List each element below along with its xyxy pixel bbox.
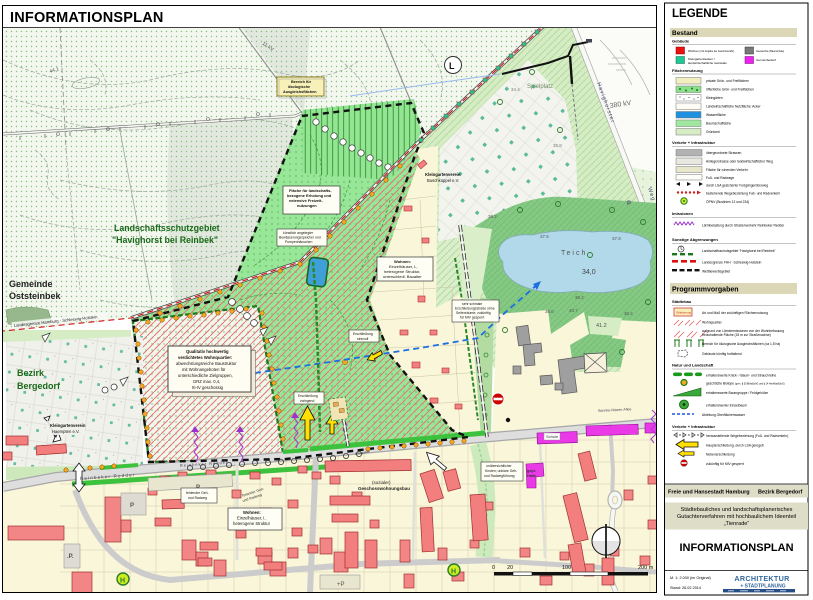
- svg-text:Qualitativ hochwertig: Qualitativ hochwertig: [186, 349, 229, 354]
- svg-text:geschützte Biotope (gem. § 30: geschützte Biotope (gem. § 30 BNatSchG u…: [706, 382, 785, 386]
- svg-text:unterschiedliche Zielgruppen,: unterschiedliche Zielgruppen,: [178, 373, 233, 378]
- svg-text:freizuhaltende Fläche (15 m zu: freizuhaltende Fläche (15 m zur Straßena…: [702, 333, 771, 337]
- svg-text:„Tienrade“: „Tienrade“: [724, 521, 750, 527]
- svg-text:(sozialer): (sozialer): [372, 480, 391, 485]
- svg-text:öffentliche Grün- und Freifläc: öffentliche Grün- und Freiflächen: [706, 88, 754, 92]
- svg-text:Wohnen:: Wohnen:: [243, 510, 261, 515]
- svg-text:Landesgrenze FHH - Schleswig-H: Landesgrenze FHH - Schleswig-Holstein: [702, 261, 762, 265]
- svg-text:Pumpenhäuschen: Pumpenhäuschen: [285, 240, 312, 244]
- svg-text:Natur und Landschaft: Natur und Landschaft: [672, 363, 714, 368]
- svg-text:Bestand: Bestand: [672, 30, 698, 37]
- svg-text:sinnvoll: sinnvoll: [357, 337, 369, 341]
- svg-text:und Radwegführung: und Radwegführung: [484, 474, 515, 478]
- svg-text:Baumschulfläche: Baumschulfläche: [706, 122, 731, 126]
- svg-text:Geschosswohnungsbau: Geschosswohnungsbau: [358, 486, 410, 491]
- svg-text:Wettbewerbsgebiet: Wettbewerbsgebiet: [702, 270, 730, 274]
- svg-text:Ausgleichsflächen: Ausgleichsflächen: [283, 90, 317, 94]
- svg-text:Bereich für ökologische Ausgle: Bereich für ökologische Ausgleichsfläche…: [702, 342, 780, 346]
- svg-text:Lärmbelastung durch Straßenver: Lärmbelastung durch Straßenverkehr Reinb…: [702, 224, 785, 228]
- svg-text:durch LSA gesicherter Fußgänge: durch LSA gesicherter Fußgängerüberweg: [706, 184, 768, 188]
- svg-text:landwirtschaftliche Gebäude: landwirtschaftliche Gebäude: [688, 61, 727, 65]
- svg-text:Haempten e.V.: Haempten e.V.: [52, 429, 80, 434]
- svg-text:Bergedorf: Bergedorf: [17, 381, 61, 391]
- svg-text:Einzelhäuser, I,: Einzelhäuser, I,: [237, 516, 266, 521]
- svg-text:.P.: .P.: [67, 554, 74, 560]
- svg-text:Wohnen (mit Angabe der Geschos: Wohnen (mit Angabe der Geschosszahl): [688, 49, 734, 53]
- svg-text:Wasserfläche: Wasserfläche: [706, 113, 726, 117]
- svg-text:Fuß- und Radwege: Fuß- und Radwege: [706, 176, 734, 180]
- svg-text:fehlender Geh-: fehlender Geh-: [186, 491, 209, 495]
- svg-text:Städtebauliches und landschaft: Städtebauliches und landschaftsplanerisc…: [681, 507, 793, 513]
- svg-text:ökologische: ökologische: [288, 85, 310, 89]
- svg-text:H: H: [120, 578, 125, 585]
- svg-text:Gebäude künftig fortfallend: Gebäude künftig fortfallend: [702, 352, 742, 356]
- svg-text:Städtebau: Städtebau: [672, 299, 692, 304]
- svg-text:abwechslungsreiche Baustruktur: abwechslungsreiche Baustruktur: [176, 361, 237, 366]
- svg-text:heterogene Struktur: heterogene Struktur: [233, 521, 271, 526]
- svg-text:200 m: 200 m: [638, 565, 654, 571]
- svg-text:Ableitung Oberflächenwasser: Ableitung Oberflächenwasser: [702, 413, 746, 417]
- svg-text:37.9: 37.9: [612, 236, 621, 241]
- svg-text:INFORMATIONSPLAN: INFORMATIONSPLAN: [679, 542, 793, 554]
- svg-text:Verkehr + Infrastruktur: Verkehr + Infrastruktur: [672, 424, 715, 429]
- svg-text:Schule: Schule: [546, 434, 559, 439]
- svg-text:für MIV gesperrt: für MIV gesperrt: [460, 316, 484, 320]
- svg-text:Nebenerschließung: Nebenerschließung: [706, 453, 735, 457]
- svg-text:zwingend: zwingend: [300, 399, 314, 403]
- svg-text:0: 0: [492, 565, 495, 571]
- svg-text:sehr schmale: sehr schmale: [462, 302, 482, 306]
- svg-text:erhaltenswerter Einzelbaum: erhaltenswerter Einzelbaum: [706, 404, 747, 408]
- svg-text:bestehende Wegebeziehung Fuß-: bestehende Wegebeziehung Fuß- und Radver…: [706, 192, 781, 196]
- svg-text:Knoten; unklare Geh-: Knoten; unklare Geh-: [485, 469, 517, 473]
- svg-text:Fläche für ruhenden Verkehr: Fläche für ruhenden Verkehr: [706, 168, 749, 172]
- svg-text:Flächennutzung: Flächennutzung: [672, 68, 703, 73]
- svg-text:Gebäude: Gebäude: [672, 39, 690, 44]
- svg-text:LEGENDE: LEGENDE: [672, 8, 728, 20]
- svg-text:Gemeinde: Gemeinde: [9, 279, 53, 289]
- svg-text:erhaltenswerte Knick- / Baum-: erhaltenswerte Knick- / Baum- und Strauc…: [706, 374, 776, 378]
- svg-text:übergeordnete Strassen: übergeordnete Strassen: [706, 151, 742, 155]
- svg-text:mit Wohnangeboten für: mit Wohnangeboten für: [182, 367, 226, 372]
- svg-text:unübersichtlicher: unübersichtlicher: [486, 464, 513, 468]
- svg-text:Oststeinbek: Oststeinbek: [9, 291, 62, 301]
- svg-text:INFORMATIONSPLAN: INFORMATIONSPLAN: [10, 10, 164, 26]
- svg-text:Bezirk: Bezirk: [17, 368, 45, 378]
- svg-text:Programmvorgaben: Programmvorgaben: [672, 287, 739, 294]
- svg-text:Seitenräume; zukünftig: Seitenräume; zukünftig: [456, 311, 491, 315]
- svg-text:Erläuterung: Erläuterung: [677, 311, 692, 315]
- svg-text:Anliegerstrasse oder landwirts: Anliegerstrasse oder landwirtschaftliche…: [706, 160, 773, 164]
- svg-text:100: 100: [562, 565, 571, 571]
- svg-text:Spielplatz: Spielplatz: [527, 84, 553, 90]
- svg-text:Bereich für: Bereich für: [291, 80, 312, 84]
- svg-text:34.4: 34.4: [511, 87, 520, 92]
- svg-text:zukünftig für MIV gesperrt: zukünftig für MIV gesperrt: [706, 462, 744, 466]
- svg-text:Landschaftsschutzgebiet "Havig: Landschaftsschutzgebiet "Havighorst bei …: [702, 249, 776, 253]
- svg-text:Kleingärten: Kleingärten: [706, 96, 723, 100]
- svg-text:36.2: 36.2: [624, 311, 633, 316]
- svg-text:Stand: 26.02.2014: Stand: 26.02.2014: [670, 586, 701, 590]
- svg-text:Bezirk Bergedorf: Bezirk Bergedorf: [758, 490, 802, 496]
- svg-text:unterschiedl. Baualter: unterschiedl. Baualter: [383, 274, 422, 279]
- svg-text:41.2: 41.2: [596, 323, 607, 329]
- svg-text:herausstellende Wegebeziehung: herausstellende Wegebeziehung (Fuß- und …: [706, 434, 788, 438]
- svg-text:Landwirtschaftliche Nutzfläche: Landwirtschaftliche Nutzfläche: Acker: [706, 105, 762, 109]
- svg-text:Verkehr + Infrastruktur: Verkehr + Infrastruktur: [672, 140, 715, 145]
- svg-text:P: P: [627, 201, 631, 207]
- svg-text:L: L: [449, 61, 455, 71]
- svg-text:Halle: Halle: [527, 474, 536, 478]
- svg-text:III-IV geschossig: III-IV geschossig: [192, 385, 224, 390]
- svg-text:Freie und Hansestadt Hamburg: Freie und Hansestadt Hamburg: [668, 490, 750, 496]
- svg-text:nutzungen: nutzungen: [297, 203, 317, 208]
- svg-text:Wohnquartier: Wohnquartier: [702, 321, 723, 325]
- svg-text:Erschließung: Erschließung: [353, 332, 373, 336]
- svg-text:P: P: [130, 503, 134, 509]
- svg-text:40.7: 40.7: [569, 308, 578, 313]
- svg-text:gepl.: gepl.: [527, 469, 536, 473]
- svg-text:erhaltenswerte Baumgruppe / Fe: erhaltenswerte Baumgruppe / Feldgehölze: [706, 391, 768, 395]
- svg-text:ÖPNV (Buslinien 12 und 234): ÖPNV (Buslinien 12 und 234): [706, 200, 749, 204]
- svg-text:"Havighorst bei Reinbek": "Havighorst bei Reinbek": [112, 235, 218, 245]
- svg-text:Kleingartenverein: Kleingartenverein: [50, 423, 86, 428]
- svg-text:Buschkoppel e.V.: Buschkoppel e.V.: [427, 178, 459, 183]
- svg-text:künstlich angelegter: künstlich angelegter: [283, 231, 314, 235]
- svg-text:Gutachterverfahren mit hochbau: Gutachterverfahren mit hochbaulichem Ide…: [677, 514, 796, 520]
- svg-text:H: H: [451, 569, 456, 576]
- svg-text:Erschließung: Erschließung: [298, 394, 318, 398]
- svg-text:34,0: 34,0: [582, 269, 596, 276]
- svg-text:GRZ max. 0,4,: GRZ max. 0,4,: [193, 379, 220, 384]
- svg-text:private Grün- und Freiflächen: private Grün- und Freiflächen: [706, 79, 749, 83]
- svg-text:36.0: 36.0: [545, 309, 554, 314]
- svg-text:35.8: 35.8: [553, 143, 562, 148]
- svg-text:+P: +P: [337, 582, 345, 588]
- svg-text:Landschaftsschutzgebiet: Landschaftsschutzgebiet: [114, 223, 220, 233]
- svg-text:Sonstige Abgrenzungen: Sonstige Abgrenzungen: [672, 237, 718, 242]
- svg-text:Grünland: Grünland: [706, 130, 720, 134]
- svg-text:20: 20: [507, 565, 513, 571]
- svg-text:Teich: Teich: [561, 250, 587, 257]
- svg-text:Bewässerungsspeicher und: Bewässerungsspeicher und: [279, 236, 321, 240]
- svg-text:verdichtetes Wohnquartier:: verdichtetes Wohnquartier:: [178, 355, 232, 360]
- svg-text:+ STADTPLANUNG: + STADTPLANUNG: [740, 584, 785, 590]
- svg-text:36.2: 36.2: [488, 214, 497, 219]
- svg-text:Gewerbe (Baumschule): Gewerbe (Baumschule): [756, 49, 784, 53]
- svg-text:Imissionen: Imissionen: [672, 211, 693, 216]
- svg-text:37.5: 37.5: [540, 234, 549, 239]
- svg-text:36.2: 36.2: [575, 295, 584, 300]
- svg-text:Art und Maß der zukünftigen Fl: Art und Maß der zukünftigen Flächennutzu…: [702, 311, 768, 315]
- svg-text:Kleingartenverein: Kleingartenverein: [425, 172, 461, 177]
- svg-text:ARCHITEKTUR: ARCHITEKTUR: [734, 574, 790, 583]
- svg-text:Haupterschließung, durch LSA g: Haupterschließung, durch LSA geregelt: [706, 444, 764, 448]
- svg-text:M. 1: 2.000 (im Original): M. 1: 2.000 (im Original): [670, 576, 711, 580]
- svg-text:Gemeinbedarf: Gemeinbedarf: [756, 58, 776, 62]
- svg-text:und Radweg: und Radweg: [188, 496, 207, 500]
- svg-text:Erschließungsstraße ohne: Erschließungsstraße ohne: [455, 307, 495, 311]
